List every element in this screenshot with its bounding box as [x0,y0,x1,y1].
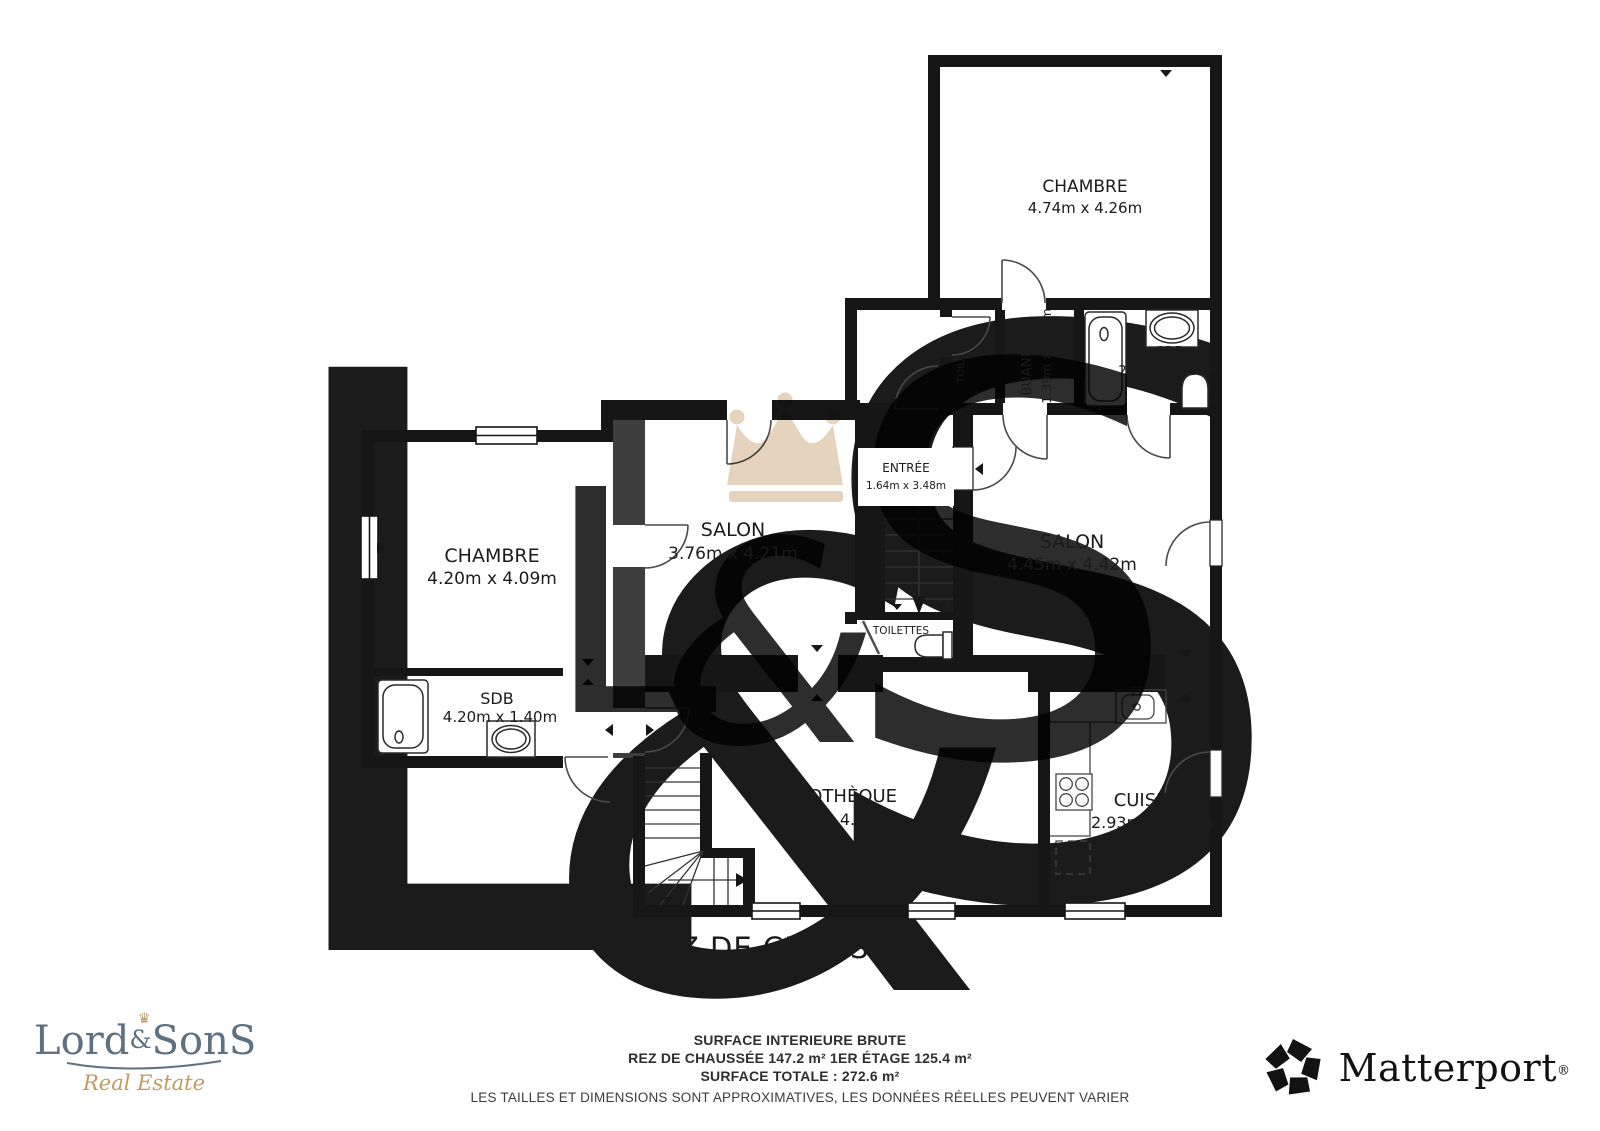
agency-tagline: Real Estate [34,1071,254,1095]
matterport-name: Matterport [1339,1046,1557,1090]
bathroom-sink [487,721,535,757]
room-dims: 4.45m x 4.42m [1007,555,1137,575]
room-label: CUISINE [1114,790,1187,811]
agency-name-sons: SonS [152,1018,257,1064]
toilet [1182,374,1208,408]
floorplan-page: L & S [0,0,1600,1131]
room-dims: 2.46m x 1.80m [1118,364,1217,379]
room-label: SDB [1156,345,1183,360]
room-label: CHAMBRE [444,545,539,567]
room-label: CHAMBRE [1042,177,1127,197]
room-label: ENTRÉE [882,460,929,475]
room-dims: 3.76m x 4.21m [668,544,798,564]
window [476,427,537,444]
room-label: SDB [480,689,513,708]
room-dims: 1.39m x 1.80m [1039,308,1054,403]
matterport-pinwheel-icon [1261,1036,1325,1100]
window [908,903,955,919]
room-label: TOILETTES [956,329,967,384]
bathtub [378,680,428,753]
room-dims: 4.20m x 1.40m [443,708,557,726]
floor-title: REZ DE CHAUSSÉE [638,931,927,965]
room-label: SALON [1040,531,1105,553]
agency-name: Lord&SonS [34,1020,254,1067]
matterport-logo: Matterport® [1261,1036,1570,1100]
room-dims: 4.74m x 4.26m [1028,199,1142,217]
agency-logo: ♛ Lord&SonS Real Estate [34,1020,254,1095]
window [361,516,378,579]
window [752,903,800,919]
agency-name-amp: & [129,1025,151,1054]
window [1065,903,1125,919]
room-dims: 4.20m x 4.09m [427,569,557,589]
floorplan-drawing: L & S [0,0,1600,1131]
room-label: BUANDERIE [1019,316,1035,395]
room-label: SALON [701,519,766,541]
entree-label-box [858,448,954,506]
room-dims: 2.93m x 4.07m [1091,813,1213,832]
agency-name-lord: Lord [34,1018,129,1064]
matterport-wordmark: Matterport® [1339,1046,1570,1090]
room-dims: 7.01m x 4.07m [769,810,891,829]
room-label: TOILETTES [872,625,930,637]
matterport-reg-mark: ® [1557,1064,1570,1079]
room-label: BIBLIOTHÈQUE [763,785,897,807]
room-dims: 1.64m x 3.48m [866,480,946,492]
